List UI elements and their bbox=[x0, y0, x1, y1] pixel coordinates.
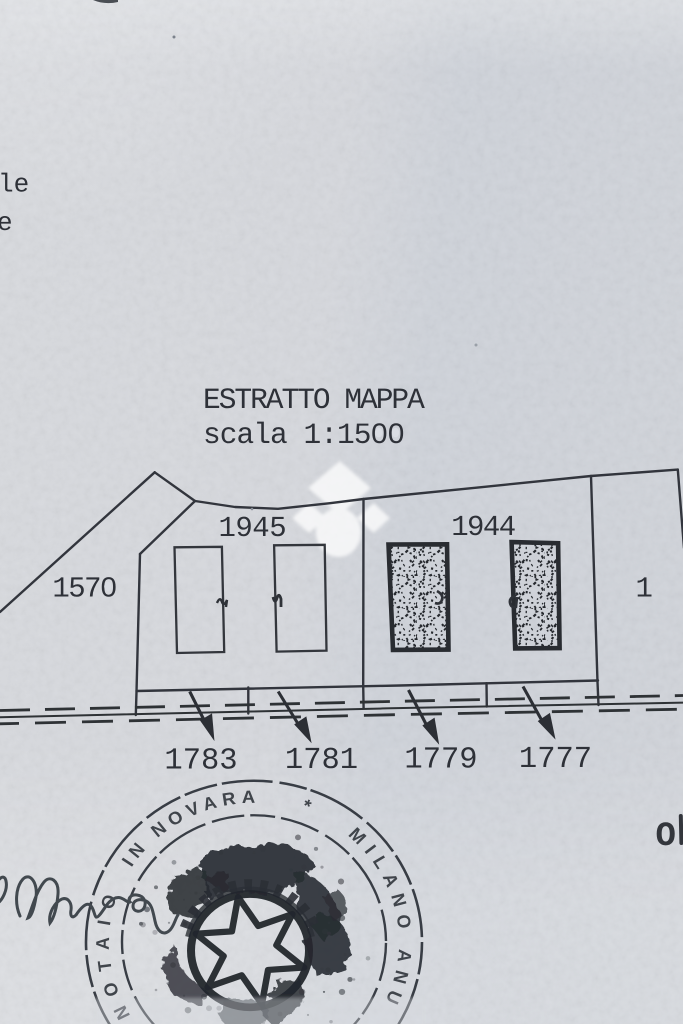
svg-text:O: O bbox=[656, 818, 676, 856]
svg-text:1783: 1783 bbox=[164, 745, 237, 779]
svg-text:1781: 1781 bbox=[285, 744, 358, 778]
svg-text:1944: 1944 bbox=[451, 511, 515, 544]
svg-text:1945: 1945 bbox=[219, 512, 287, 545]
svg-text:ESTRATTO MAPPA: ESTRATTO MAPPA bbox=[203, 383, 425, 417]
svg-text:1779: 1779 bbox=[404, 744, 477, 778]
svg-text:scala 1:1500: scala 1:1500 bbox=[203, 418, 404, 452]
svg-text:1777: 1777 bbox=[519, 743, 592, 777]
svg-text:e: e bbox=[0, 208, 13, 238]
svg-text:le: le bbox=[0, 170, 29, 200]
svg-text:1: 1 bbox=[636, 573, 653, 606]
